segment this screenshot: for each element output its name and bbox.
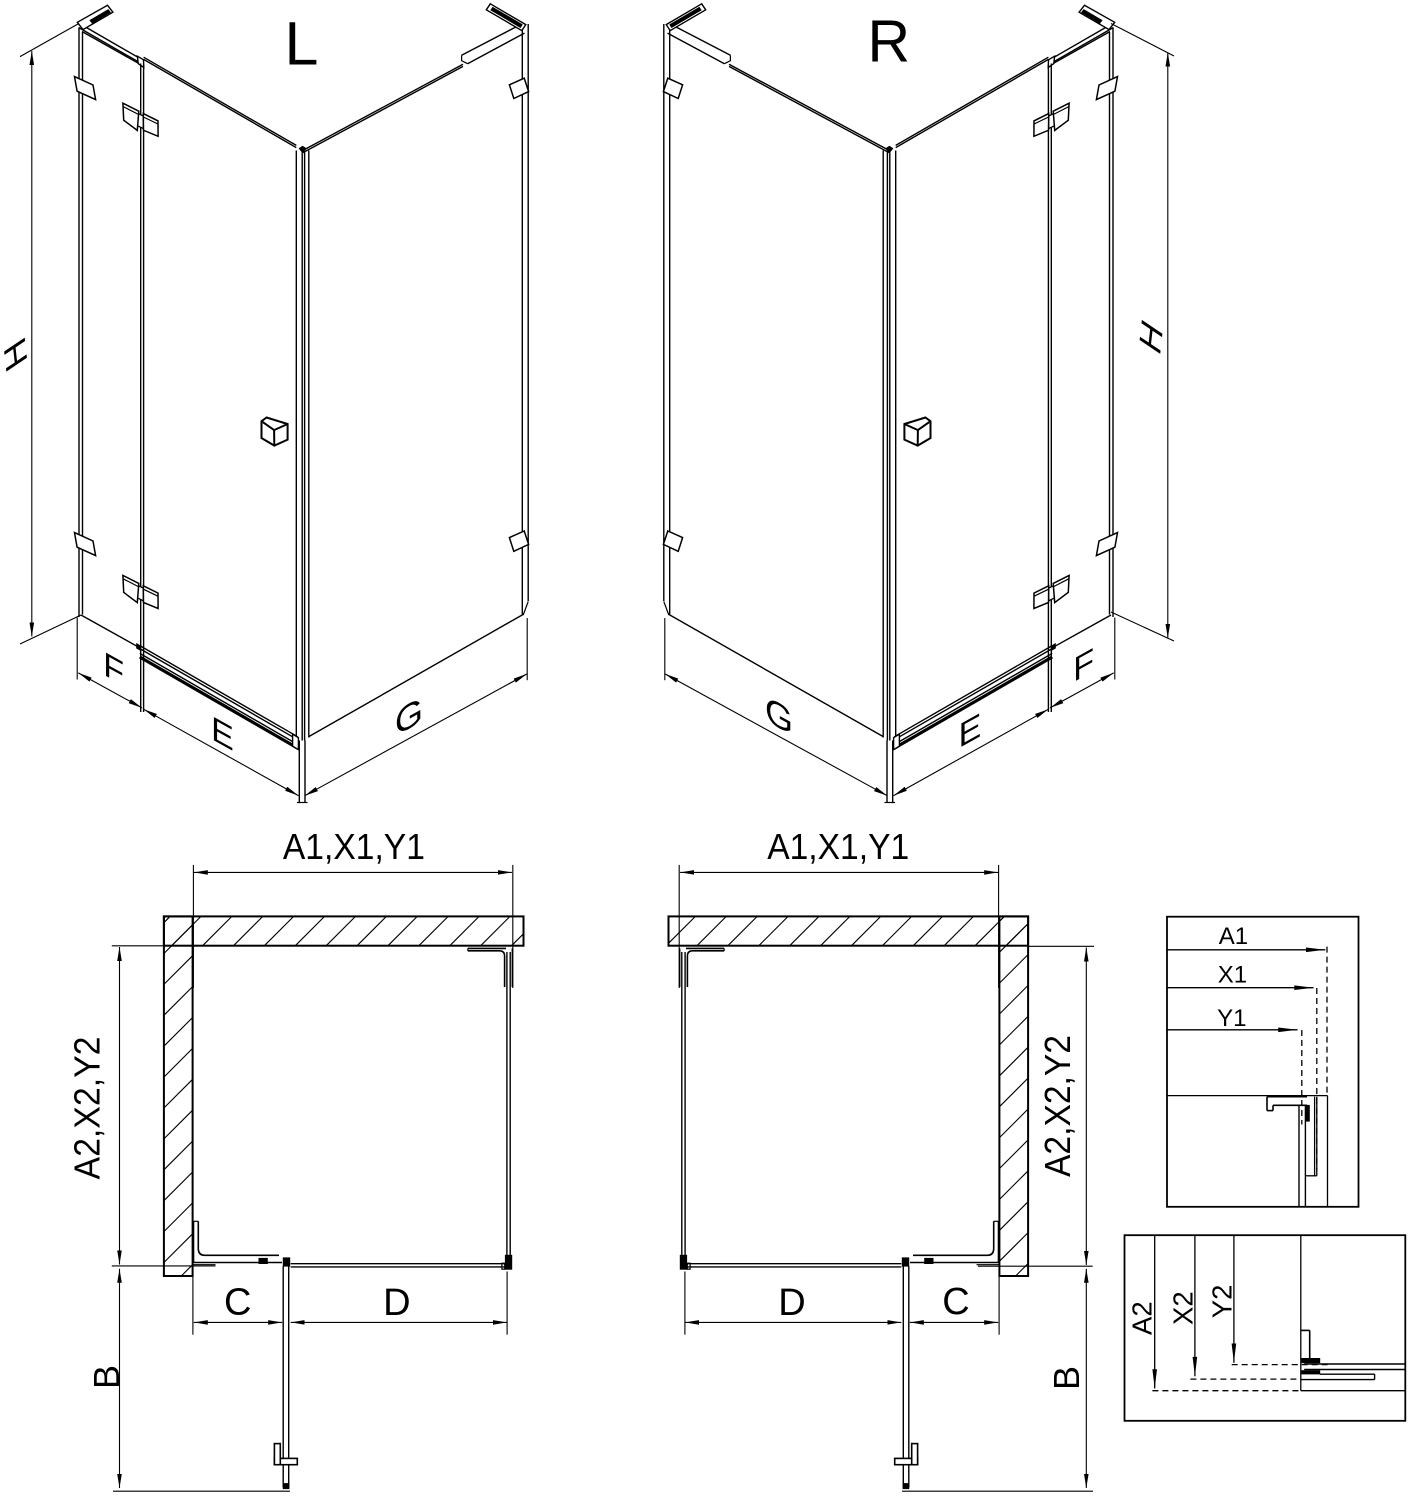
- svg-text:R: R: [867, 9, 910, 75]
- svg-text:X1: X1: [1218, 961, 1247, 988]
- svg-text:B: B: [86, 1365, 127, 1389]
- svg-text:A2,X2,Y2: A2,X2,Y2: [67, 1037, 108, 1180]
- svg-text:B: B: [1046, 1366, 1087, 1390]
- svg-text:H: H: [1133, 312, 1170, 361]
- svg-text:A1,X1,Y1: A1,X1,Y1: [283, 826, 425, 867]
- svg-text:D: D: [383, 1282, 410, 1324]
- svg-text:Y2: Y2: [1207, 1285, 1238, 1319]
- svg-text:F: F: [103, 644, 124, 694]
- svg-text:G: G: [765, 688, 793, 744]
- svg-text:A2,X2,Y2: A2,X2,Y2: [1037, 1035, 1078, 1177]
- svg-text:X2: X2: [1168, 1291, 1199, 1325]
- svg-text:Y1: Y1: [1217, 1005, 1246, 1032]
- svg-text:L: L: [285, 9, 319, 77]
- svg-text:C: C: [942, 1281, 969, 1323]
- svg-text:A2: A2: [1126, 1301, 1157, 1335]
- svg-text:H: H: [0, 330, 34, 379]
- svg-text:F: F: [1073, 640, 1094, 690]
- svg-text:A1,X1,Y1: A1,X1,Y1: [767, 826, 909, 867]
- svg-text:C: C: [224, 1281, 251, 1323]
- svg-text:E: E: [211, 708, 234, 759]
- svg-text:D: D: [778, 1282, 805, 1324]
- svg-text:A1: A1: [1219, 923, 1248, 950]
- svg-text:G: G: [395, 689, 423, 745]
